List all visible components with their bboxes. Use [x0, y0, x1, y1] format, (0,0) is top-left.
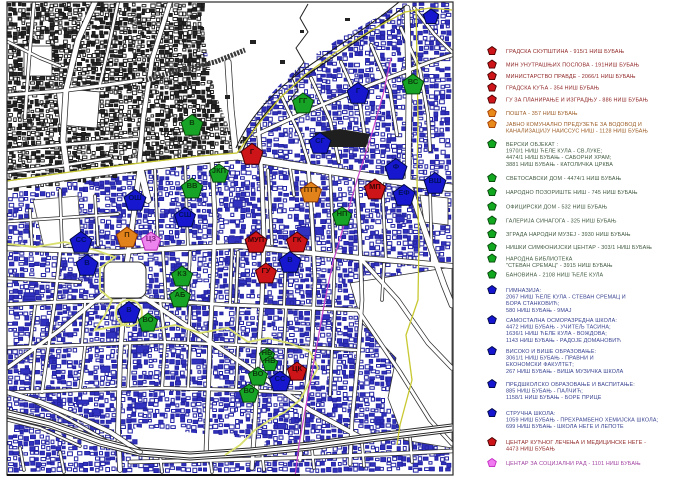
svg-text:МИНИСТАРСТВО ПРАВДЕ - 2066/1 Н: МИНИСТАРСТВО ПРАВДЕ - 2066/1 НИШ БУБАЊ [506, 74, 636, 80]
svg-text:САМОСТАЛНА ОСМОРАЗРЕДНА ШКОЛА:: САМОСТАЛНА ОСМОРАЗРЕДНА ШКОЛА: [506, 318, 617, 324]
svg-text:В: В [189, 118, 195, 127]
svg-text:ЕКОНОМСКИ ФАКУЛТЕТ;: ЕКОНОМСКИ ФАКУЛТЕТ; [506, 362, 574, 368]
svg-text:1059 НИШ БУБАЊ - ПРЕХРАМБЕНО Х: 1059 НИШ БУБАЊ - ПРЕХРАМБЕНО ХЕМИЈСКА ШК… [506, 418, 659, 424]
svg-text:Ф: Ф [393, 162, 400, 171]
svg-text:СС: СС [275, 374, 286, 383]
svg-text:МП: МП [369, 182, 381, 191]
svg-text:ГИМНАЗИЈА:: ГИМНАЗИЈА: [506, 288, 541, 294]
svg-text:3061/1 НИШ БУБАЊ - ПРАВНИ И: 3061/1 НИШ БУБАЊ - ПРАВНИ И [506, 356, 594, 362]
svg-text:ГРАДСКА КУЋА - 354 НИШ БУБАЊ: ГРАДСКА КУЋА - 354 НИШ БУБАЊ [506, 86, 600, 92]
svg-text:"СТЕВАН СРЕМАЦ" - 3915 НИШ БУБ: "СТЕВАН СРЕМАЦ" - 3915 НИШ БУБАЊ [506, 263, 613, 269]
svg-text:1636/1 НИШ ЋЕЛЕ КУЛА - ВОЖДОВА: 1636/1 НИШ ЋЕЛЕ КУЛА - ВОЖДОВА; [506, 331, 607, 337]
svg-text:СВЕТОСАВСКИ ДОМ - 4474/1 НИШ Б: СВЕТОСАВСКИ ДОМ - 4474/1 НИШ БУБАЊ [506, 176, 622, 182]
svg-text:ЈАВНО КОМУНАЛНО ПРЕДУЗЕЋЕ ЗА В: ЈАВНО КОМУНАЛНО ПРЕДУЗЕЋЕ ЗА ВОДОВОД И [506, 122, 642, 128]
svg-text:1970/1 НИШ ЋЕЛЕ КУЛА - СВ.ЛУКЕ: 1970/1 НИШ ЋЕЛЕ КУЛА - СВ.ЛУКЕ; [506, 149, 603, 155]
svg-text:1143 НИШ БУБАЊ - РАДОЈЕ ДОМАНО: 1143 НИШ БУБАЊ - РАДОЈЕ ДОМАНОВИЋ [506, 338, 621, 344]
svg-text:ГАЛЕРИЈА СИНАГОГА - 325 НИШ БУ: ГАЛЕРИЈА СИНАГОГА - 325 НИШ БУБАЊ [506, 219, 617, 225]
svg-text:4472 НИШ БУБАЊ - УЧИТЕЉ ТАСИНА: 4472 НИШ БУБАЊ - УЧИТЕЉ ТАСИНА; [506, 325, 611, 331]
svg-text:В: В [287, 255, 293, 264]
svg-text:ЗГРАДА НАРОДНИ МУЗЕЈ - 3930 НИ: ЗГРАДА НАРОДНИ МУЗЕЈ - 3930 НИШ БУБАЊ [506, 232, 631, 238]
svg-text:ВВ: ВВ [187, 181, 198, 190]
svg-text:БОРА СТАНКОВИЋ;: БОРА СТАНКОВИЋ; [506, 301, 560, 307]
svg-text:580 НИШ БУБАЊ - 9МАЈ: 580 НИШ БУБАЊ - 9МАЈ [506, 308, 572, 314]
svg-text:НП: НП [337, 209, 348, 218]
svg-text:В: В [126, 305, 132, 314]
svg-text:КАНАЛИЗАЦИЈУ НАИССУС НИШ - 112: КАНАЛИЗАЦИЈУ НАИССУС НИШ - 1128 НИШ БУБА… [506, 129, 649, 135]
svg-text:МУП: МУП [248, 235, 264, 244]
svg-text:НБ: НБ [265, 356, 276, 365]
svg-text:БАНОВИНА - 2108 НИШ ЋЕЛЕ КУЛА: БАНОВИНА - 2108 НИШ ЋЕЛЕ КУЛА [506, 273, 604, 279]
svg-text:ПТТ: ПТТ [304, 185, 319, 194]
svg-text:НАРОДНО ПОЗОРИШТЕ НИШ - 745 НИ: НАРОДНО ПОЗОРИШТЕ НИШ - 745 НИШ БУБАЊ [506, 190, 638, 196]
svg-text:ПРЕДШКОЛСКО ОБРАЗОВАЊЕ И ВАСПИ: ПРЕДШКОЛСКО ОБРАЗОВАЊЕ И ВАСПИТАЊЕ: [506, 382, 635, 388]
svg-text:НАРОДНА БИБЛИОТЕКА: НАРОДНА БИБЛИОТЕКА [506, 257, 573, 263]
svg-text:ЦЗ: ЦЗ [146, 234, 156, 243]
svg-text:АБ: АБ [175, 290, 186, 299]
svg-text:3881 НИШ БУБАЊ - КАТОЛИЧКА ЦРК: 3881 НИШ БУБАЊ - КАТОЛИЧКА ЦРКВА [506, 162, 613, 168]
svg-text:ОФИЦИРСКИ ДОМ - 532 НИШ БУБАЊ: ОФИЦИРСКИ ДОМ - 532 НИШ БУБАЊ [506, 205, 608, 211]
svg-text:НИШКИ СИМФОНИЈСКИ ЦЕНТАР - 303: НИШКИ СИМФОНИЈСКИ ЦЕНТАР - 303/1 НИШ БУБ… [506, 245, 652, 251]
svg-text:ГГ: ГГ [299, 96, 308, 105]
svg-text:4474/1 НИШ БУБАЊ - САБОРНИ ХРА: 4474/1 НИШ БУБАЊ - САБОРНИ ХРАМ; [506, 155, 612, 161]
svg-text:ЦК: ЦК [292, 364, 302, 373]
svg-text:ВЕРСКИ ОБЈЕКАТ :: ВЕРСКИ ОБЈЕКАТ : [506, 142, 558, 148]
svg-text:ГУ: ГУ [262, 266, 271, 275]
svg-text:ОШ: ОШ [128, 193, 142, 202]
svg-text:885 НИШ БУБАЊ - ПАЛЧИЋ;: 885 НИШ БУБАЊ - ПАЛЧИЋ; [506, 389, 583, 395]
svg-text:1158/1 НИШ БУБАЊ - БОРЕ ПРИЦЕ: 1158/1 НИШ БУБАЊ - БОРЕ ПРИЦЕ [506, 395, 602, 401]
svg-text:СС: СС [76, 235, 87, 244]
svg-text:ПОШТА - 357 НИШ БУБАЊ: ПОШТА - 357 НИШ БУБАЊ [506, 111, 578, 117]
svg-text:ГРАДСКА СКУПШТИНА - 915/1 НИШ: ГРАДСКА СКУПШТИНА - 915/1 НИШ БУБАЊ [506, 49, 625, 55]
svg-text:ВО: ВО [252, 369, 263, 378]
svg-text:ЦЕНТАР КУЋНОГ ЛЕЧЕЊА И МЕДИЦИН: ЦЕНТАР КУЋНОГ ЛЕЧЕЊА И МЕДИЦИНСКЕ НЕГЕ - [506, 440, 646, 446]
svg-text:ВО: ВО [243, 386, 254, 395]
svg-text:4473 НИШ БУБАЊ: 4473 НИШ БУБАЊ [506, 447, 555, 453]
svg-text:Г: Г [356, 86, 361, 95]
svg-text:ГК: ГК [293, 235, 302, 244]
svg-text:ГУ ЗА ПЛАНИРАЊЕ И ИЗГРАДЊУ - 8: ГУ ЗА ПЛАНИРАЊЕ И ИЗГРАДЊУ - 886 НИШ БУБ… [506, 98, 649, 104]
svg-text:ЕФ: ЕФ [398, 188, 410, 197]
svg-text:В: В [84, 258, 90, 267]
svg-text:КЗ: КЗ [177, 269, 187, 278]
svg-text:ВШ: ВШ [429, 176, 442, 185]
svg-text:П: П [124, 230, 129, 239]
svg-text:ЦЕНТАР ЗА СОЦИЈАЛНИ РАД - 110: ЦЕНТАР ЗА СОЦИЈАЛНИ РАД - 1101 НИШ БУБАЊ [506, 461, 641, 467]
svg-text:СГ: СГ [315, 136, 325, 145]
svg-text:СТРУЧНА ШКОЛА:: СТРУЧНА ШКОЛА: [506, 411, 555, 417]
svg-text:Г: Г [250, 147, 255, 156]
svg-text:2067 НИШ ЋЕЛЕ КУЛА - СТЕВАН СР: 2067 НИШ ЋЕЛЕ КУЛА - СТЕВАН СРЕМАЦ И [506, 295, 626, 301]
svg-text:699 НИШ БУБАЊ - ШКОЛА НЕГЕ И Л: 699 НИШ БУБАЊ - ШКОЛА НЕГЕ И ЛЕПОТЕ [506, 424, 624, 430]
svg-text:МИН УНУТРАШЊИХ ПОСЛОВА - 191НИ: МИН УНУТРАШЊИХ ПОСЛОВА - 191НИШ БУБАЊ [506, 63, 640, 69]
svg-text:ВО: ВО [142, 315, 153, 324]
svg-text:ЈКП: ЈКП [212, 166, 226, 175]
svg-text:267 НИШ БУБАЊ - ВИША МУЗИЧКА Ш: 267 НИШ БУБАЊ - ВИША МУЗИЧКА ШКОЛА [506, 369, 624, 375]
svg-text:ВИСОКО И ВИШЕ ОБРАЗОВАЊЕ:: ВИСОКО И ВИШЕ ОБРАЗОВАЊЕ: [506, 349, 596, 355]
svg-text:ВС: ВС [408, 77, 419, 86]
svg-text:СШ: СШ [179, 210, 192, 219]
